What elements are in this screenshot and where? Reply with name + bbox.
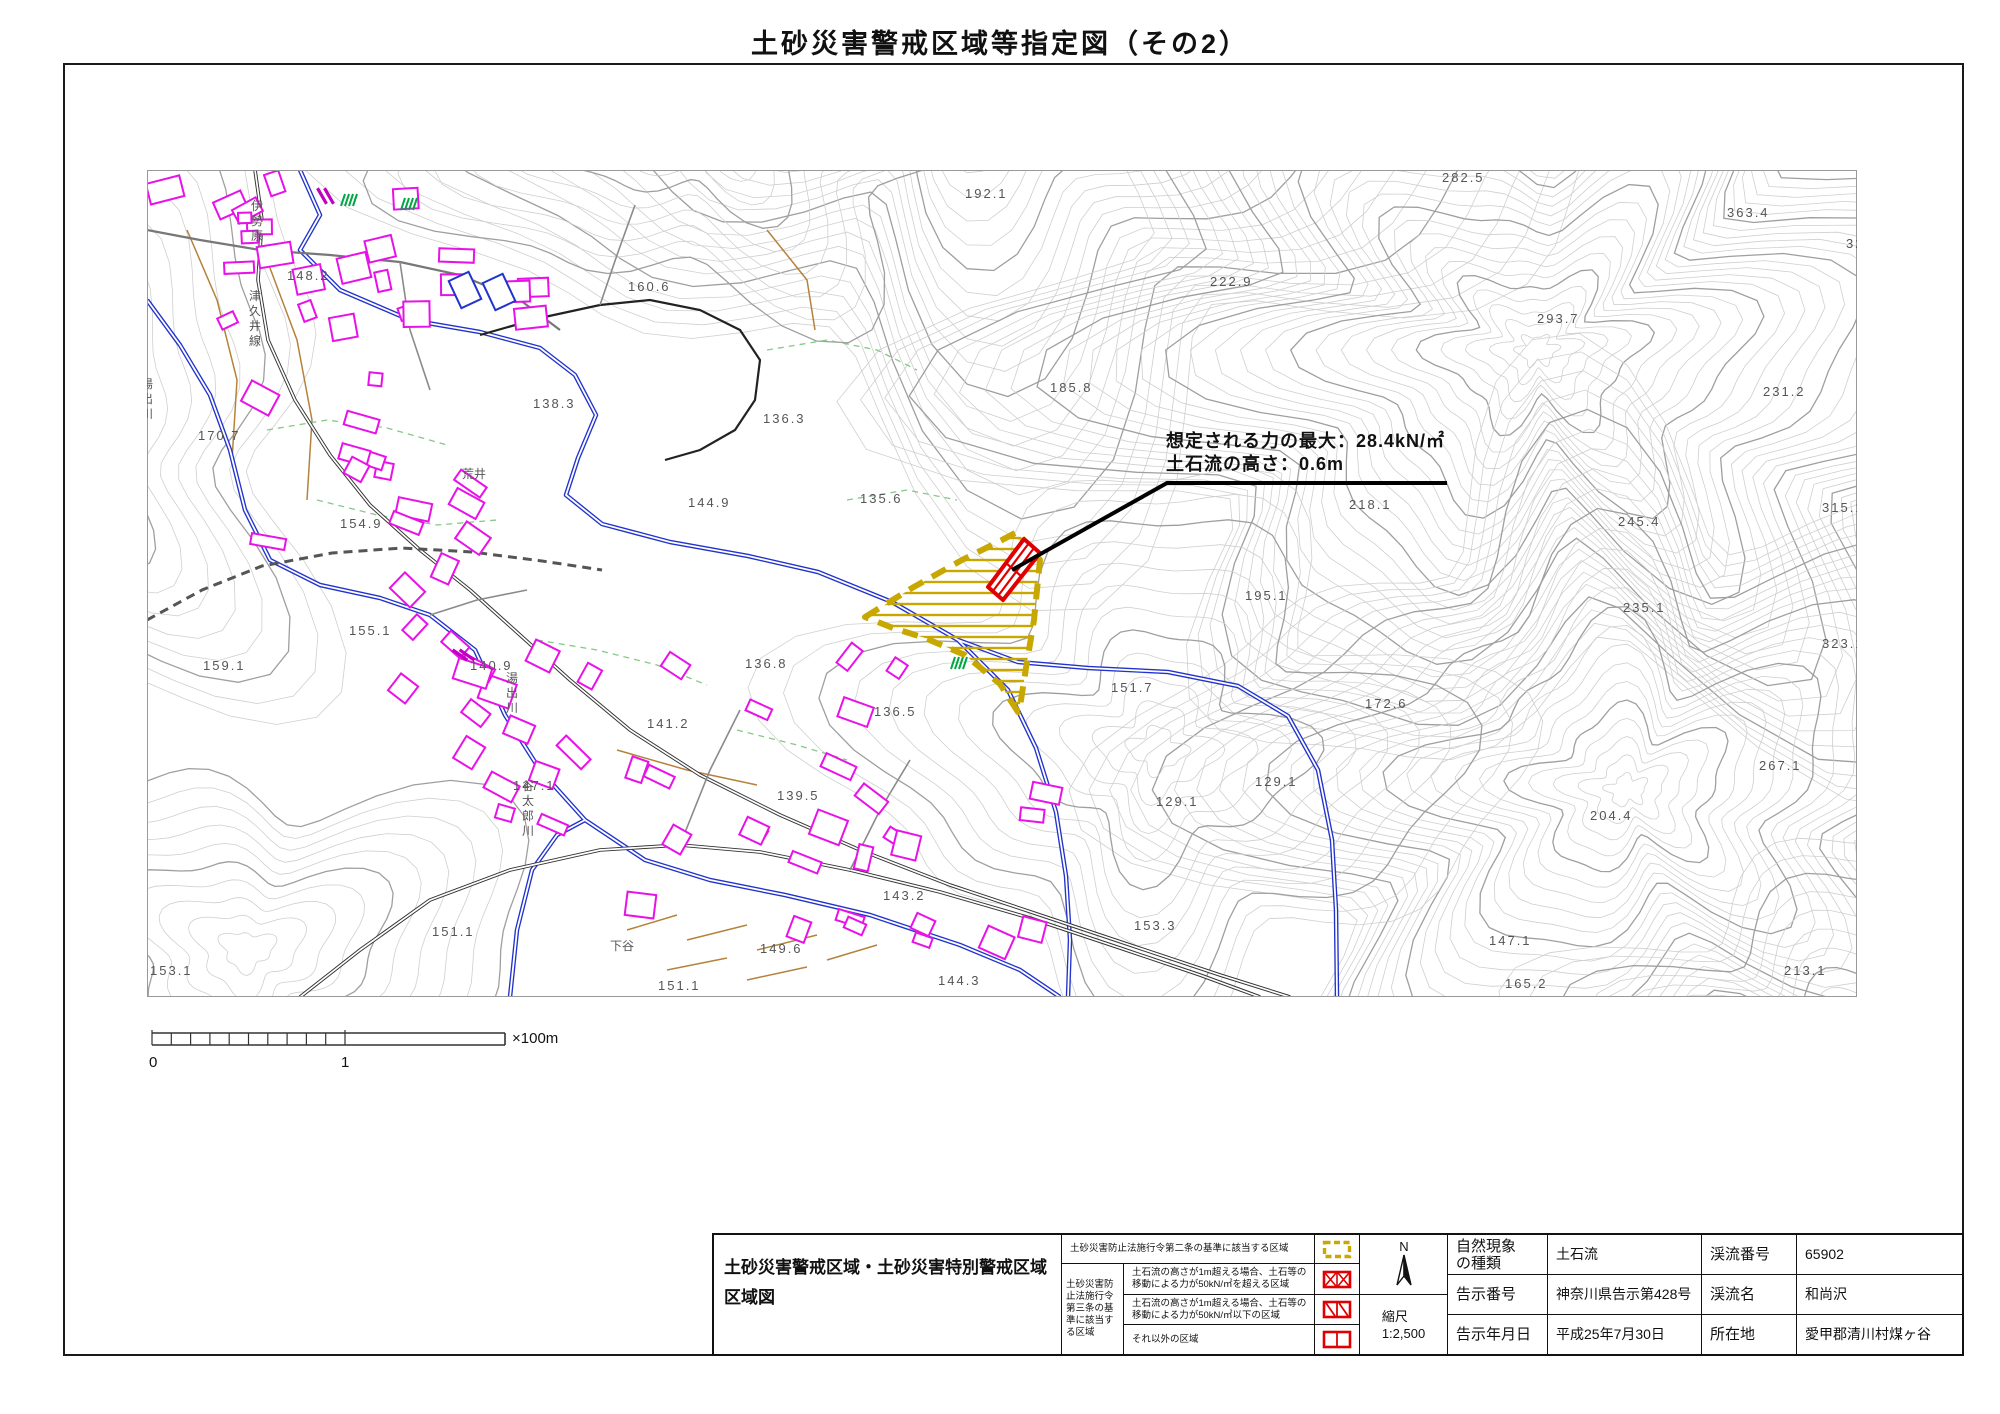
place-label: 湯出川 <box>147 377 153 421</box>
elevation-label: 213.1 <box>1784 963 1827 978</box>
elevation-label: 129.1 <box>1156 794 1199 809</box>
phenomenon-type-value: 土石流 <box>1548 1235 1702 1275</box>
elevation-label: 165.2 <box>1505 976 1548 991</box>
elevation-label: 192.1 <box>965 186 1008 201</box>
legend-info-table: 土砂災害警戒区域・土砂災害特別警戒区域 区域図 土砂災害防止法施行令第二条の基準… <box>712 1233 1964 1356</box>
elevation-label: 139.5 <box>777 788 820 803</box>
elevation-label: 324.3 <box>1846 236 1857 251</box>
region-map-title-line2: 区域図 <box>724 1283 1061 1313</box>
region-map-title-line1: 土砂災害警戒区域・土砂災害特別警戒区域 <box>724 1253 1061 1283</box>
map-scale-cell: 縮尺 1:2,500 <box>1360 1295 1448 1354</box>
place-label: 湯出川 <box>506 671 518 715</box>
scale-word: 縮尺 <box>1382 1309 1408 1324</box>
elevation-label: 154.9 <box>340 516 383 531</box>
legend-symbol-special-under50 <box>1315 1295 1360 1325</box>
elevation-label: 151.1 <box>432 924 475 939</box>
scale-one-label: 1 <box>341 1054 349 1071</box>
notice-number-value: 神奈川県告示第428号 <box>1548 1275 1702 1315</box>
scale-unit-label: ×100m <box>512 1030 558 1047</box>
legend-symbol-other-area <box>1315 1325 1360 1354</box>
map-layers <box>147 170 1857 997</box>
location-label: 所在地 <box>1702 1315 1797 1354</box>
elevation-label: 159.1 <box>203 658 246 673</box>
place-label: 伊勢原 <box>251 199 263 243</box>
special-area-cross-hatch-icon <box>1322 1270 1352 1289</box>
legend-row1-text: 土砂災害防止法施行令第二条の基準に該当する区域 <box>1062 1235 1315 1264</box>
elevation-label: 231.2 <box>1763 384 1806 399</box>
scale-bar: 0 1 ×100m <box>140 1024 600 1074</box>
legend-row3-line1: 土石流の高さが1m超える場合、土石等の <box>1132 1298 1306 1309</box>
notice-date-value: 平成25年7月30日 <box>1548 1315 1702 1354</box>
elevation-label: 136.3 <box>763 411 806 426</box>
elevation-label: 143.2 <box>883 888 926 903</box>
phenomenon-label-l2: の種類 <box>1456 1255 1501 1272</box>
region-map-title-cell: 土砂災害警戒区域・土砂災害特別警戒区域 区域図 <box>714 1235 1062 1354</box>
elevation-label: 153.1 <box>150 963 193 978</box>
elevation-label: 218.1 <box>1349 497 1392 512</box>
elevation-label: 195.1 <box>1245 588 1288 603</box>
hazard-map-canvas: 282.5192.1363.4324.3160.6222.9293.7138.3… <box>147 170 1857 997</box>
elevation-label: 185.8 <box>1050 380 1093 395</box>
elevation-label: 315.1 <box>1822 500 1857 515</box>
elevation-label: 136.5 <box>874 704 917 719</box>
elevation-label: 293.7 <box>1537 311 1580 326</box>
place-label: 下谷 <box>610 939 634 953</box>
phenomenon-label-l1: 自然現象 <box>1456 1238 1516 1255</box>
elevation-label: 155.1 <box>349 623 392 638</box>
elevation-label: 141.2 <box>647 716 690 731</box>
elevation-label: 282.5 <box>1442 170 1485 185</box>
legend-row3-line2: 移動による力が50kN/㎡以下の区域 <box>1132 1310 1280 1321</box>
legend-row4-text: それ以外の区域 <box>1124 1325 1315 1354</box>
legend-subheader: 土砂災害防止法施行令第三条の基準に該当する区域 <box>1062 1264 1124 1354</box>
elevation-label: 144.9 <box>688 495 731 510</box>
elevation-label: 153.3 <box>1134 918 1177 933</box>
other-area-icon <box>1322 1330 1352 1349</box>
elevation-label: 136.8 <box>745 656 788 671</box>
place-label: 津久井線 <box>249 289 261 348</box>
vegetation-lines <box>267 340 957 760</box>
phenomenon-type-label: 自然現象 の種類 <box>1448 1235 1548 1275</box>
elevation-label: 235.1 <box>1623 600 1666 615</box>
elevation-label: 222.9 <box>1210 274 1253 289</box>
special-area-diagonal-icon <box>1322 1300 1352 1319</box>
elevation-label: 363.4 <box>1727 205 1770 220</box>
scale-zero-label: 0 <box>149 1054 157 1071</box>
place-label: 荒井 <box>462 467 486 481</box>
place-label: 谷太郎川 <box>522 779 534 838</box>
stream-number-label: 渓流番号 <box>1702 1235 1797 1275</box>
notice-date-label: 告示年月日 <box>1448 1315 1548 1354</box>
page-title: 土砂災害警戒区域等指定図（その2） <box>0 22 2000 61</box>
stream-number-value: 65902 <box>1797 1235 1962 1275</box>
warning-area-icon <box>1322 1240 1352 1259</box>
legend-row2-text: 土石流の高さが1m超える場合、土石等の 移動による力が50kN/㎡を超える区域 <box>1124 1264 1315 1295</box>
notice-number-label: 告示番号 <box>1448 1275 1548 1315</box>
elevation-label: 148.2 <box>287 268 330 283</box>
elevation-label: 147.1 <box>513 778 556 793</box>
legend-row2-line1: 土石流の高さが1m超える場合、土石等の <box>1132 1267 1306 1278</box>
legend-symbol-warning-area <box>1315 1235 1360 1264</box>
elevation-label: 138.3 <box>533 396 576 411</box>
location-value: 愛甲郡清川村煤ヶ谷 <box>1797 1315 1962 1354</box>
stream-name-label: 渓流名 <box>1702 1275 1797 1315</box>
north-arrow-cell: N <box>1360 1235 1448 1295</box>
legend-row2-line2: 移動による力が50kN/㎡を超える区域 <box>1132 1279 1289 1290</box>
elevation-label: 147.1 <box>1489 933 1532 948</box>
elevation-label: 170.7 <box>198 428 241 443</box>
north-label: N <box>1399 1239 1408 1254</box>
legend-row3-text: 土石流の高さが1m超える場合、土石等の 移動による力が50kN/㎡以下の区域 <box>1124 1295 1315 1325</box>
elevation-label: 160.6 <box>628 279 671 294</box>
elevation-label: 267.1 <box>1759 758 1802 773</box>
elevation-label: 144.3 <box>938 973 981 988</box>
north-arrow-icon: N <box>1389 1239 1419 1291</box>
elevation-label: 149.6 <box>760 941 803 956</box>
stream-name-value: 和尚沢 <box>1797 1275 1962 1315</box>
page: { "title": "土砂災害警戒区域等指定図（その2）", "annotat… <box>0 0 2000 1414</box>
legend-symbol-special-over50 <box>1315 1264 1360 1295</box>
elevation-label: 245.4 <box>1618 514 1661 529</box>
elevation-label: 135.6 <box>860 491 903 506</box>
elevation-label: 151.7 <box>1111 680 1154 695</box>
elevation-label: 151.1 <box>658 978 701 993</box>
elevation-label: 129.1 <box>1255 774 1298 789</box>
scale-bar-lines <box>152 1033 505 1045</box>
elevation-label: 323.1 <box>1822 636 1857 651</box>
elevation-label: 204.4 <box>1590 808 1633 823</box>
scale-ratio: 1:2,500 <box>1382 1326 1425 1341</box>
elevation-label: 172.6 <box>1365 696 1408 711</box>
